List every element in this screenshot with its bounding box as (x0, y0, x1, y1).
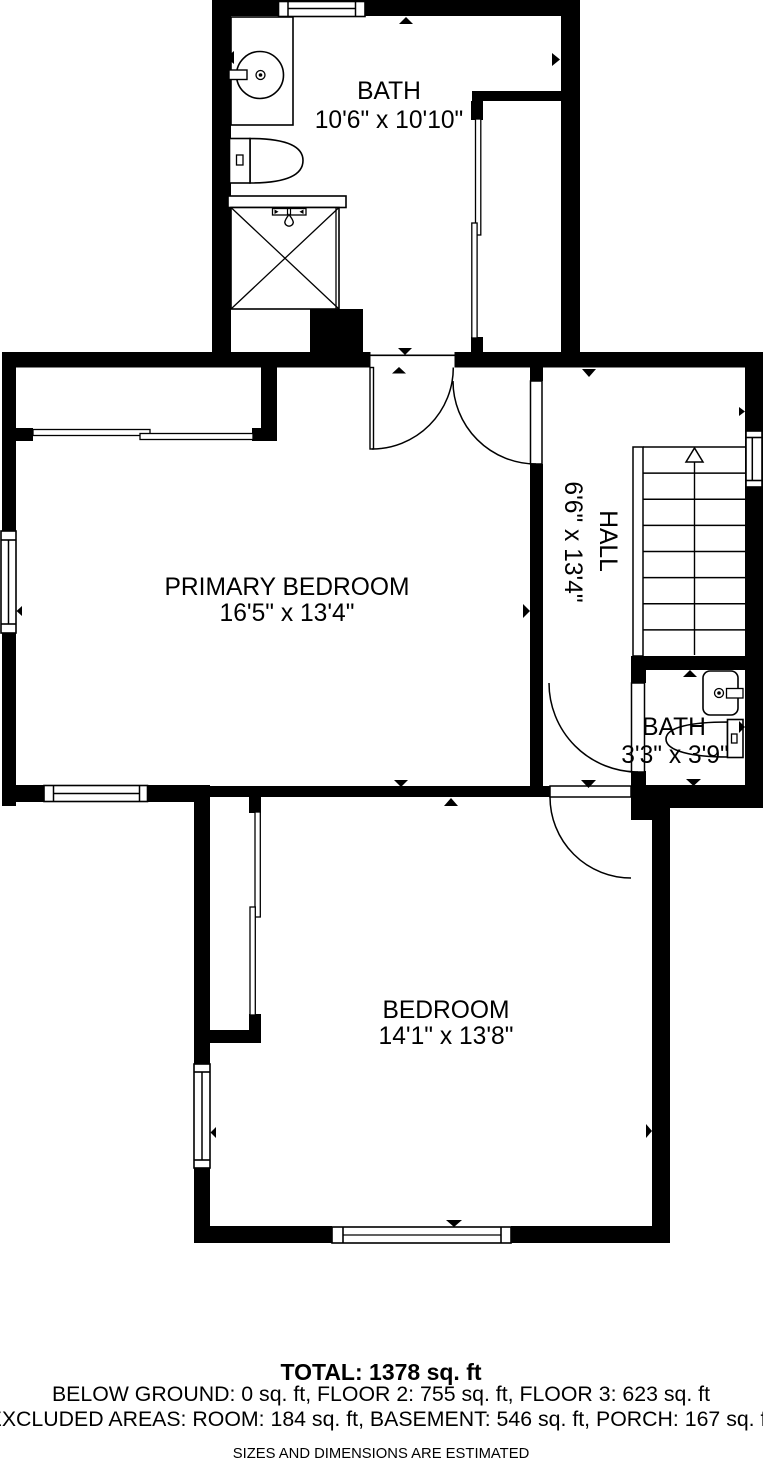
svg-text:BATH: BATH (357, 78, 421, 105)
svg-text:14'1" x 13'8": 14'1" x 13'8" (379, 1023, 514, 1050)
svg-text:BATH: BATH (642, 714, 706, 741)
svg-text:EXCLUDED AREAS: ROOM: 184 sq.: EXCLUDED AREAS: ROOM: 184 sq. ft, BASEME… (0, 1407, 763, 1431)
svg-text:10'6" x 10'10": 10'6" x 10'10" (315, 107, 464, 134)
svg-text:SIZES AND DIMENSIONS ARE ESTIM: SIZES AND DIMENSIONS ARE ESTIMATED (233, 1446, 530, 1462)
svg-text:BELOW GROUND: 0 sq. ft, FLOOR: BELOW GROUND: 0 sq. ft, FLOOR 2: 755 sq.… (52, 1382, 710, 1406)
svg-text:3'3" x 3'9": 3'3" x 3'9" (621, 742, 729, 769)
svg-text:6'6" x 13'4": 6'6" x 13'4" (559, 481, 586, 602)
svg-text:HALL: HALL (594, 510, 621, 572)
svg-text:PRIMARY BEDROOM: PRIMARY BEDROOM (164, 574, 409, 601)
svg-text:BEDROOM: BEDROOM (382, 997, 509, 1024)
svg-text:16'5" x 13'4": 16'5" x 13'4" (220, 600, 355, 627)
